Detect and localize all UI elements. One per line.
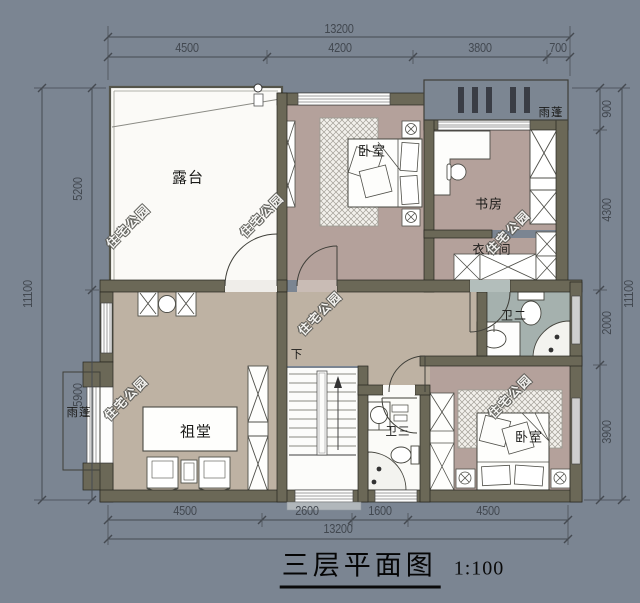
dim-right-seg-2: 4300 [600, 198, 614, 221]
pillow [400, 142, 419, 171]
dim-bottom-seg-2: 2600 [295, 504, 318, 518]
dim-bottom-seg-1: 4500 [173, 504, 196, 518]
quilt [359, 165, 392, 198]
title-text: 三层平面图 [280, 544, 441, 589]
label-bath3: 卫三 [386, 423, 411, 439]
sink [371, 407, 388, 424]
dim-top-seg-3: 3800 [468, 41, 491, 55]
label-bedroom-top: 卧室 [358, 141, 386, 160]
toilet-bowl [391, 447, 411, 463]
toilet-tank [411, 446, 419, 464]
dim-right-seg-4: 3900 [600, 420, 614, 443]
dim-right-seg-1: 900 [600, 100, 614, 118]
round-table [159, 296, 176, 313]
pillow [482, 465, 511, 485]
label-ancestral-hall: 祖堂 [180, 421, 212, 442]
label-canopy-top: 雨蓬 [539, 104, 564, 120]
label-study: 书房 [475, 194, 503, 213]
dim-bottom-total: 13200 [323, 522, 352, 536]
chair [450, 164, 466, 180]
drain-pipe [254, 84, 262, 92]
dim-top-seg-4: 700 [549, 41, 567, 55]
dim-left-seg-1: 5200 [71, 177, 85, 200]
title-scale: 1:100 [454, 558, 505, 581]
toilet-tank [518, 292, 544, 300]
label-terrace: 露台 [172, 167, 204, 188]
wardrobe [530, 128, 558, 224]
wardrobe [430, 393, 454, 490]
pillow [400, 175, 419, 204]
dim-bottom-seg-4: 4500 [476, 504, 499, 518]
side-table [181, 460, 197, 483]
dim-bottom-seg-3: 1600 [368, 504, 391, 518]
shelf [392, 405, 408, 412]
dim-left-total: 11100 [21, 280, 35, 308]
label-bedroom-bottom: 卧室 [515, 427, 543, 446]
cabinet [248, 366, 268, 492]
label-stair-down: 下 [291, 346, 304, 362]
floor-plan-page: { "title": { "text": "三层平面图", "scale": "… [0, 0, 640, 603]
armchair [199, 457, 230, 488]
dim-left-seg-2: 5900 [71, 383, 85, 406]
dim-right-total: 11100 [622, 280, 636, 308]
armchair [147, 457, 178, 488]
dim-top-total: 13200 [324, 22, 353, 36]
label-bath2: 卫二 [501, 307, 527, 324]
pillow [514, 465, 543, 486]
stair-rail [317, 371, 327, 455]
shelf [394, 415, 407, 421]
dim-right-seg-3: 2000 [600, 311, 614, 334]
dim-top-seg-2: 4200 [328, 41, 351, 55]
dim-top-seg-1: 4500 [175, 41, 198, 55]
drawing-title: 三层平面图 1:100 [280, 544, 505, 589]
